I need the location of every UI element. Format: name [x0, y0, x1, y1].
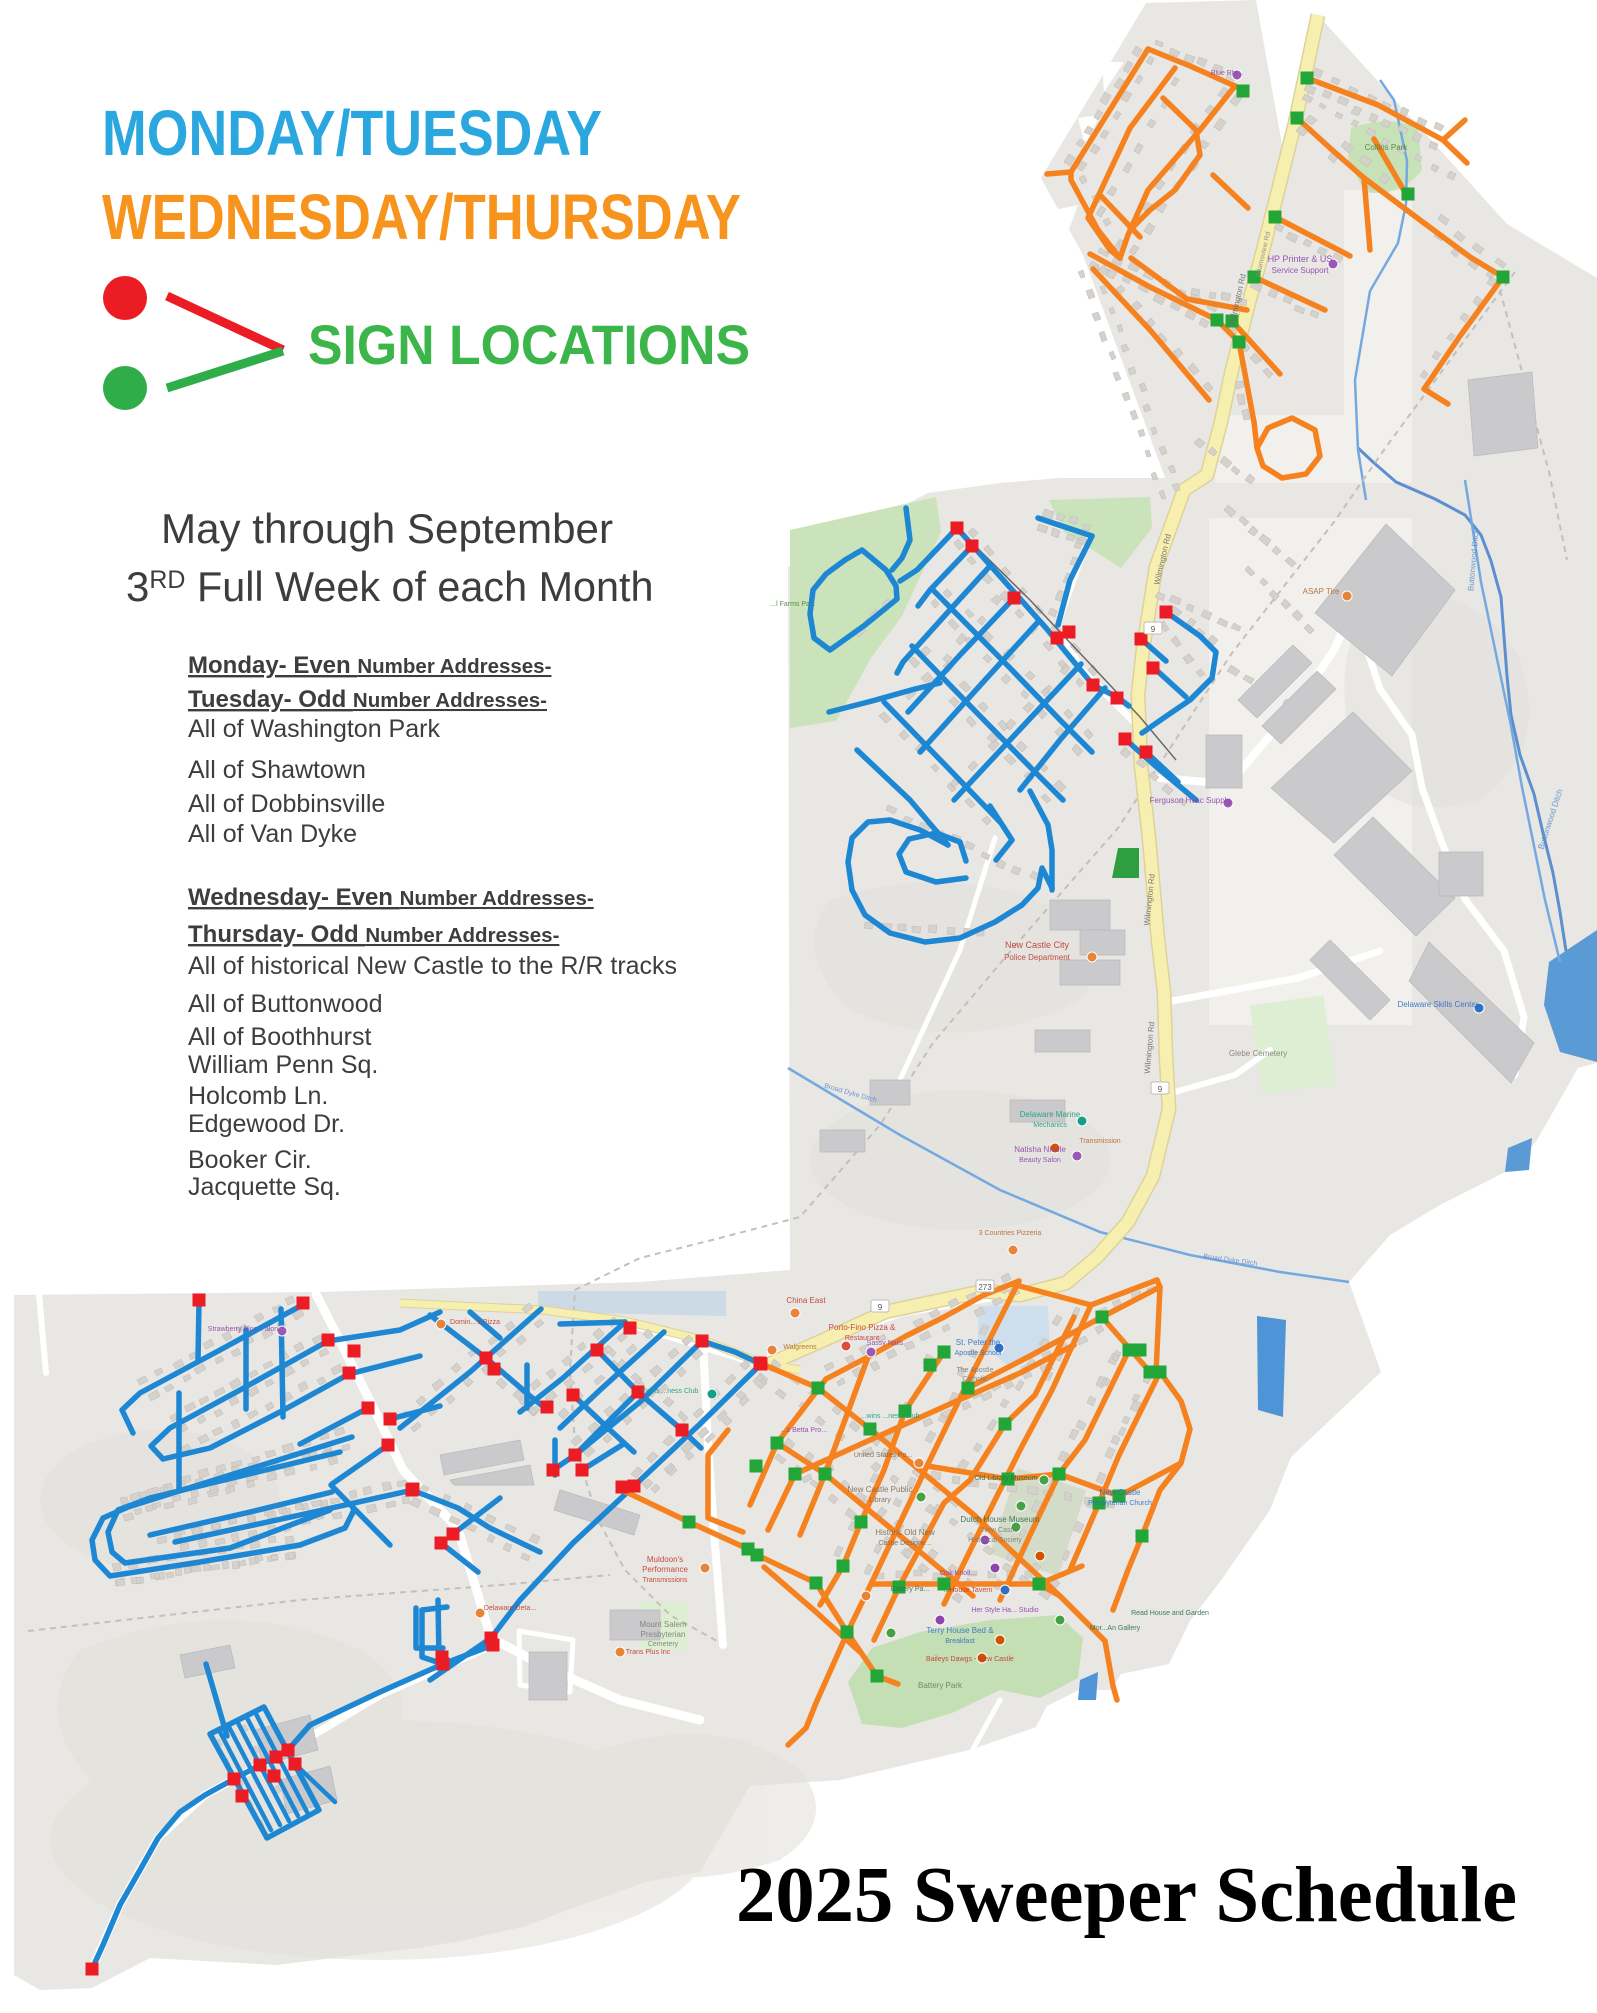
svg-text:HP Printer & US: HP Printer & US	[1268, 254, 1333, 264]
svg-text:All of Boothhurst: All of Boothhurst	[188, 1023, 371, 1051]
svg-text:Cemetery: Cemetery	[648, 1641, 679, 1648]
svg-text:Porto-Fino Pizza &: Porto-Fino Pizza &	[829, 1323, 896, 1332]
svg-text:Delaware Skills Center: Delaware Skills Center	[1398, 1000, 1479, 1009]
svg-text:Twins ...ness Club: Twins ...ness Club	[642, 1388, 699, 1395]
svg-text:Delaware Deta...: Delaware Deta...	[484, 1605, 536, 1612]
svg-text:All of historical New Castle t: All of historical New Castle to the R/R …	[188, 952, 677, 980]
svg-text:Library: Library	[869, 1497, 891, 1504]
svg-text:...House Tavern: ...House Tavern	[944, 1587, 993, 1594]
svg-text:Battery Park: Battery Park	[918, 1681, 963, 1690]
svg-text:Transmission: Transmission	[1079, 1138, 1120, 1145]
svg-text:...l Farms Pa...: ...l Farms Pa...	[770, 601, 816, 608]
svg-text:WEDNESDAY/THURSDAY: WEDNESDAY/THURSDAY	[102, 181, 741, 253]
svg-text:China East: China East	[786, 1296, 826, 1305]
svg-text:Tuesday- Odd Number Addresses-: Tuesday- Odd Number Addresses-	[188, 686, 547, 713]
svg-text:All of Shawtown: All of Shawtown	[188, 756, 366, 784]
svg-text:MONDAY/TUESDAY: MONDAY/TUESDAY	[102, 97, 602, 169]
svg-text:Terry House Bed &: Terry House Bed &	[926, 1626, 994, 1635]
svg-text:All of Washington Park: All of Washington Park	[188, 715, 440, 743]
svg-text:New Castle: New Castle	[982, 1527, 1018, 1534]
svg-text:Natisha Nicole: Natisha Nicole	[1014, 1145, 1066, 1154]
svg-text:Oak Knoll...: Oak Knoll...	[940, 1570, 976, 1577]
svg-text:Transmissions: Transmissions	[643, 1577, 688, 1584]
svg-text:The Apostle: The Apostle	[957, 1367, 994, 1374]
svg-text:United States Po...: United States Po...	[854, 1452, 912, 1459]
svg-text:New Castle City: New Castle City	[1005, 940, 1070, 950]
svg-text:Holcomb Ln.: Holcomb Ln.	[188, 1082, 328, 1110]
svg-text:Mount Salem: Mount Salem	[639, 1620, 686, 1629]
svg-text:New Castle Public: New Castle Public	[848, 1485, 913, 1494]
svg-text:Castle Designe...: Castle Designe...	[878, 1540, 931, 1547]
svg-text:All of Buttonwood: All of Buttonwood	[188, 990, 383, 1018]
svg-text:9: 9	[1151, 625, 1156, 634]
svg-text:Sassy Nails: Sassy Nails	[867, 1340, 904, 1347]
svg-text:Battery Pa...: Battery Pa...	[891, 1586, 930, 1593]
svg-text:Strawberry Blos... alon: Strawberry Blos... alon	[208, 1326, 279, 1333]
svg-text:Wednesday- Even Number Address: Wednesday- Even Number Addresses-	[188, 884, 594, 911]
svg-text:May through September: May through September	[161, 505, 613, 552]
svg-text:Booker Cir.: Booker Cir.	[188, 1146, 312, 1174]
svg-text:Presbyterian: Presbyterian	[641, 1630, 686, 1639]
svg-text:...z Betta Pro...: ...z Betta Pro...	[781, 1427, 827, 1434]
svg-text:9: 9	[1158, 1085, 1163, 1094]
svg-text:Apostle School: Apostle School	[955, 1350, 1002, 1357]
svg-text:William Penn Sq.: William Penn Sq.	[188, 1051, 378, 1079]
svg-text:Police Department: Police Department	[1004, 953, 1071, 962]
svg-text:Read House and Garden: Read House and Garden	[1131, 1610, 1209, 1617]
svg-text:2025 Sweeper Schedule: 2025 Sweeper Schedule	[736, 1852, 1517, 1939]
svg-text:Delaware Marine: Delaware Marine	[1020, 1110, 1081, 1119]
svg-text:3 Countries Pizzeria: 3 Countries Pizzeria	[979, 1230, 1042, 1237]
svg-text:Old Library Museum: Old Library Museum	[974, 1475, 1037, 1482]
svg-text:Catholic: Catholic	[962, 1376, 988, 1383]
svg-text:Historic Old New: Historic Old New	[875, 1528, 935, 1537]
svg-text:Mechanics: Mechanics	[1033, 1122, 1067, 1129]
svg-text:Breakfast: Breakfast	[945, 1638, 975, 1645]
svg-text:Monday- Even Number Addresses-: Monday- Even Number Addresses-	[188, 652, 551, 679]
svg-text:Thursday- Odd Number Addresses: Thursday- Odd Number Addresses-	[188, 921, 559, 948]
svg-text:Trans Plus Inc: Trans Plus Inc	[626, 1649, 671, 1656]
svg-text:Muldoon's: Muldoon's	[647, 1555, 683, 1564]
svg-text:Service Support: Service Support	[1272, 266, 1330, 275]
svg-text:Baileys Dawgs - New Castle: Baileys Dawgs - New Castle	[926, 1656, 1014, 1663]
svg-text:St. Peter the: St. Peter the	[956, 1338, 1001, 1347]
svg-text:Blue Rhi...: Blue Rhi...	[1211, 70, 1243, 77]
svg-text:Collins Park: Collins Park	[1365, 143, 1409, 152]
svg-text:All of Dobbinsville: All of Dobbinsville	[188, 790, 385, 818]
svg-text:ASAP Tire: ASAP Tire	[1303, 587, 1340, 596]
svg-text:Historical Society: Historical Society	[968, 1537, 1022, 1544]
svg-text:Domin...'s Pizza: Domin...'s Pizza	[450, 1319, 500, 1326]
svg-text:Presbyterian Church: Presbyterian Church	[1088, 1500, 1152, 1507]
svg-text:Mor...An Gallery: Mor...An Gallery	[1090, 1625, 1141, 1632]
svg-text:Dutch House Museum: Dutch House Museum	[960, 1515, 1039, 1524]
svg-text:Glebe Cemetery: Glebe Cemetery	[1229, 1049, 1287, 1058]
svg-text:New Castle: New Castle	[1100, 1488, 1141, 1497]
svg-text:Walgreens: Walgreens	[783, 1344, 817, 1351]
svg-text:All of Van Dyke: All of Van Dyke	[188, 820, 357, 848]
svg-text:Edgewood Dr.: Edgewood Dr.	[188, 1110, 345, 1138]
svg-text:Performance: Performance	[642, 1565, 688, 1574]
svg-text:...wins ...ness Club: ...wins ...ness Club	[861, 1413, 920, 1420]
svg-text:Beauty Salon: Beauty Salon	[1019, 1157, 1061, 1164]
svg-text:9: 9	[878, 1303, 883, 1312]
svg-text:Jacquette Sq.: Jacquette Sq.	[188, 1173, 341, 1201]
svg-text:SIGN LOCATIONS: SIGN LOCATIONS	[308, 313, 750, 376]
svg-text:273: 273	[978, 1283, 992, 1292]
svg-text:3RD Full Week of each Month: 3RD Full Week of each Month	[126, 563, 653, 610]
svg-text:Her Style Ha... Studio: Her Style Ha... Studio	[971, 1607, 1038, 1614]
svg-text:Ferguson Hvac Supply: Ferguson Hvac Supply	[1150, 796, 1231, 805]
